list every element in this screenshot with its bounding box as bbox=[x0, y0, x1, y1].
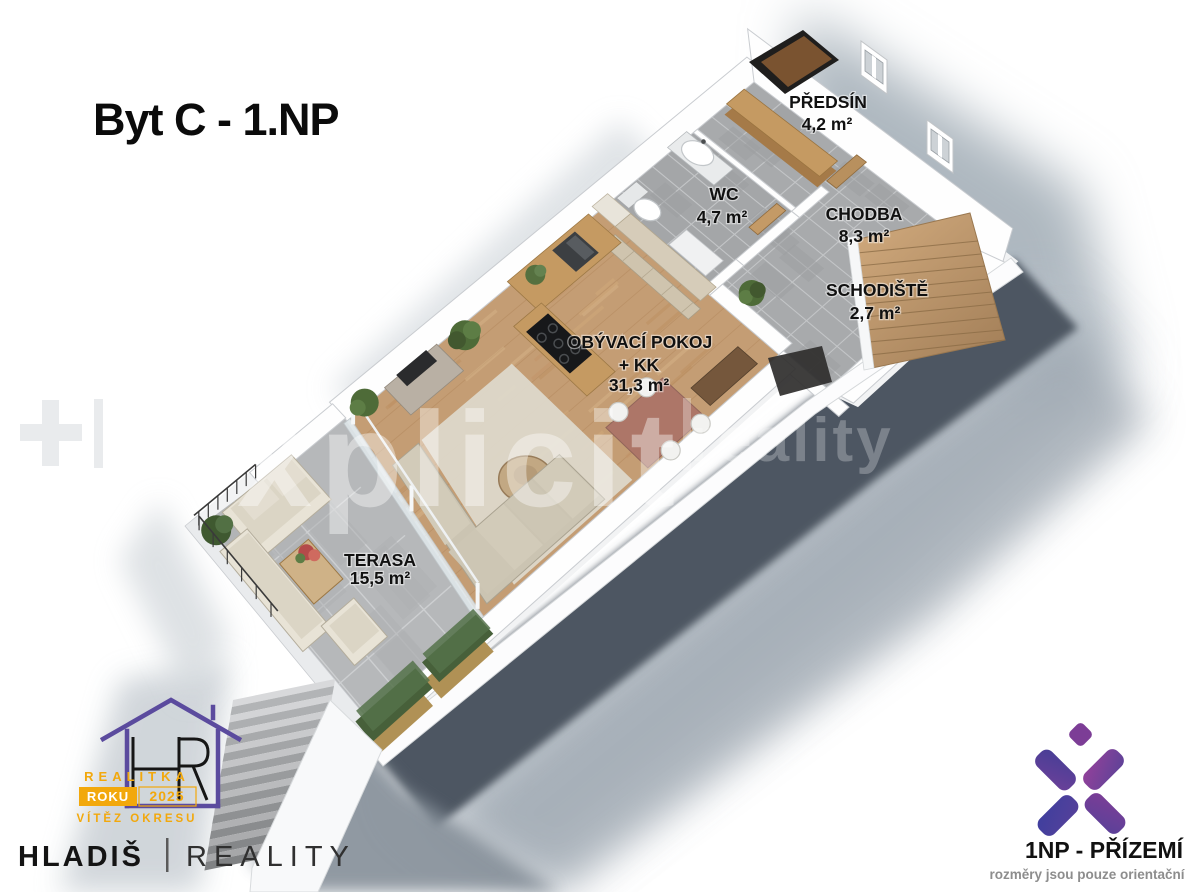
svg-text:REALITY: REALITY bbox=[186, 841, 356, 873]
svg-text:HLADIŠ: HLADIŠ bbox=[18, 839, 144, 873]
svg-text:CHODBA: CHODBA bbox=[826, 204, 903, 224]
svg-text:Byt C - 1.NP: Byt C - 1.NP bbox=[93, 94, 339, 145]
svg-text:WC: WC bbox=[709, 184, 739, 204]
svg-text:xplicit: xplicit bbox=[237, 384, 683, 535]
svg-text:4,7 m²: 4,7 m² bbox=[697, 207, 748, 227]
svg-text:SCHODIŠTĚ: SCHODIŠTĚ bbox=[826, 279, 928, 300]
svg-text:PŘEDSÍN: PŘEDSÍN bbox=[789, 91, 867, 112]
svg-text:4,2 m²: 4,2 m² bbox=[802, 114, 853, 134]
svg-text:15,5 m²: 15,5 m² bbox=[350, 568, 410, 588]
svg-text:REALITKA: REALITKA bbox=[84, 769, 190, 784]
svg-text:VÍTĚZ OKRESU: VÍTĚZ OKRESU bbox=[77, 812, 198, 825]
svg-text:31,3 m²: 31,3 m² bbox=[609, 375, 669, 395]
svg-text:TERASA: TERASA bbox=[344, 550, 416, 570]
svg-text:1NP - PŘÍZEMÍ: 1NP - PŘÍZEMÍ bbox=[1025, 836, 1184, 863]
svg-text:rozměry jsou pouze orientační: rozměry jsou pouze orientační bbox=[989, 867, 1185, 882]
svg-text:2025: 2025 bbox=[149, 788, 184, 804]
svg-text:+ KK: + KK bbox=[619, 355, 660, 375]
svg-text:8,3 m²: 8,3 m² bbox=[839, 226, 890, 246]
svg-text:ROKU: ROKU bbox=[87, 789, 129, 804]
svg-text:2,7 m²: 2,7 m² bbox=[850, 303, 901, 323]
svg-text:OBÝVACÍ POKOJ: OBÝVACÍ POKOJ bbox=[568, 331, 713, 352]
svg-text:reality: reality bbox=[690, 406, 894, 475]
